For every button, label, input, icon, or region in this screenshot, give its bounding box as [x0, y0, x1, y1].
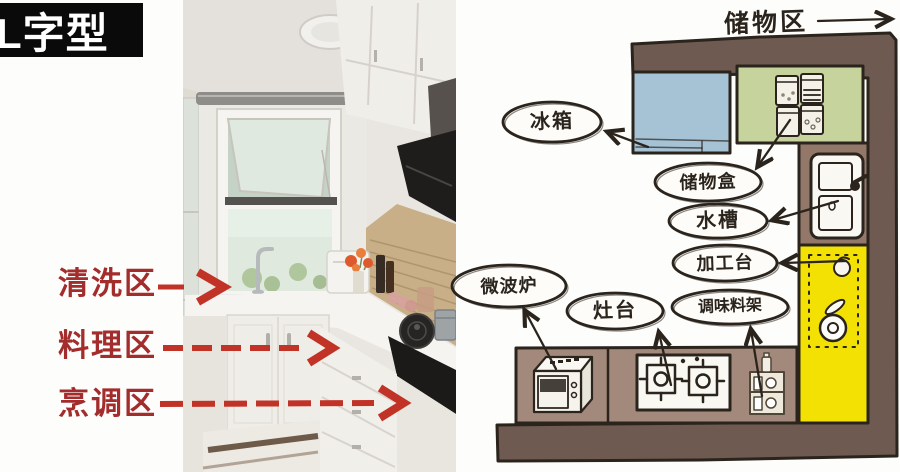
plan-microwave — [534, 357, 592, 412]
label-washing-zone: 清洗区 — [58, 268, 157, 299]
callout-prep-counter: 加工台 — [696, 253, 754, 273]
kitchen-photo — [183, 0, 456, 472]
plan-fridge — [633, 72, 730, 153]
callout-spice-rack: 调味料架 — [698, 298, 763, 316]
callout-sink: 水槽 — [696, 210, 741, 232]
floor-plan — [452, 19, 897, 461]
plan-sink — [799, 143, 868, 245]
plan-prep-counter — [799, 245, 868, 423]
callout-storage-box: 储物盒 — [679, 172, 737, 192]
label-prep-zone: 料理区 — [58, 330, 157, 361]
label-storage-area: 储物区 — [723, 2, 808, 41]
callout-microwave: 微波炉 — [480, 276, 538, 296]
callout-fridge: 冰箱 — [530, 111, 575, 133]
callout-stove: 灶台 — [593, 300, 638, 322]
plan-stove — [637, 355, 730, 410]
infographic-l-shaped-kitchen: L字型 清洗区 料理区 烹调区 储物区 冰箱 储物盒 水槽 加工台 微波炉 灶台… — [0, 0, 900, 472]
arrow-storage-area — [818, 19, 890, 21]
title-badge: L字型 — [0, 3, 143, 57]
label-cooking-zone: 烹调区 — [58, 388, 157, 419]
plan-storage-jars — [737, 66, 863, 143]
title-text: L字型 — [0, 3, 109, 57]
